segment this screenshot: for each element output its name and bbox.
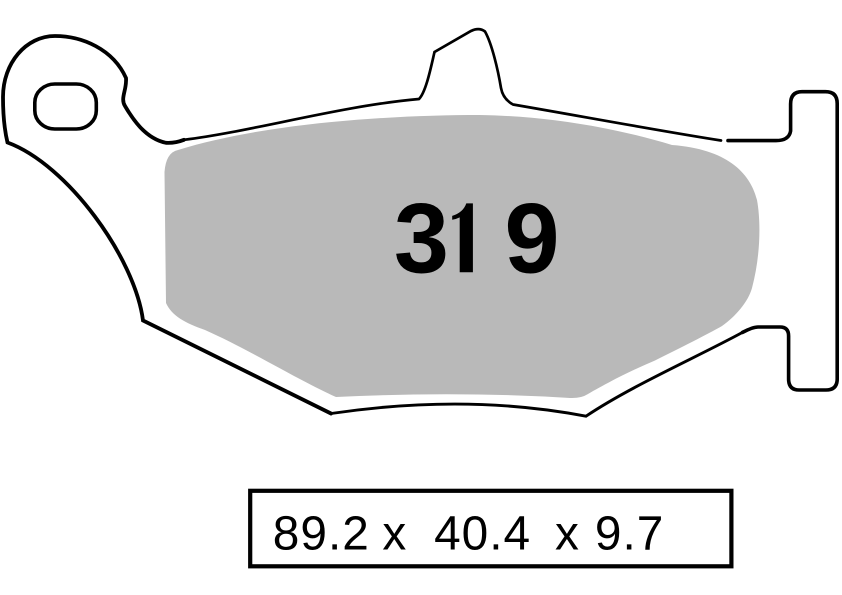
svg-text:9: 9: [505, 182, 560, 293]
svg-text:3: 3: [394, 182, 449, 293]
svg-text:89.2x40.4x9.7: 89.2x40.4x9.7: [273, 508, 665, 561]
